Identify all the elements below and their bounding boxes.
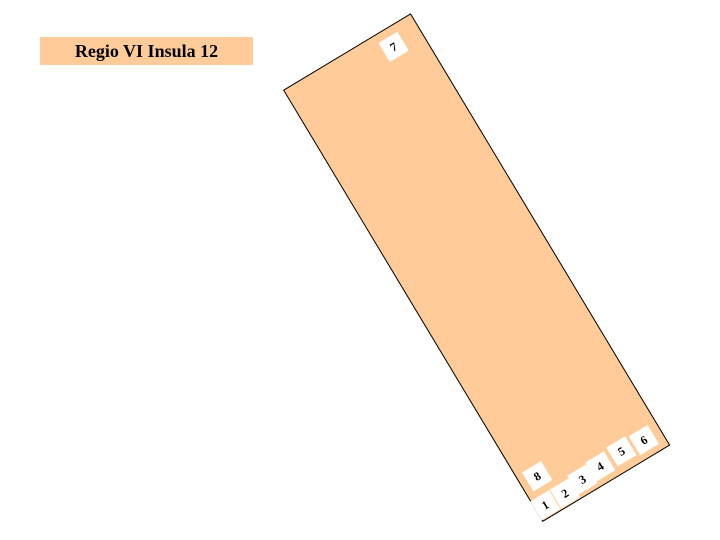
entrance-hotspot-8[interactable]: 8 <box>522 461 552 491</box>
entrance-number: 5 <box>615 443 628 459</box>
entrance-number: 4 <box>594 458 607 474</box>
map-title: Regio VI Insula 12 <box>40 37 253 65</box>
map-title-label: Regio VI Insula 12 <box>75 41 218 62</box>
entrance-number: 2 <box>559 485 572 501</box>
entrance-number: 6 <box>637 432 650 448</box>
insula-shape: 7 8 1 2 3 4 5 6 <box>283 13 670 522</box>
entrance-number: 1 <box>539 497 552 513</box>
entrance-number: 8 <box>531 468 544 484</box>
entrance-number: 7 <box>387 39 400 55</box>
entrance-hotspot-7[interactable]: 7 <box>378 32 408 62</box>
entrance-number: 3 <box>576 471 589 487</box>
